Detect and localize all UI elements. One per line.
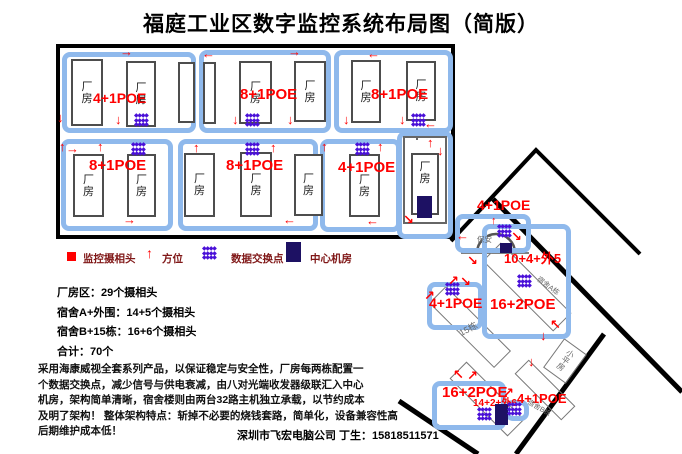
direction-arrow-icon: ↖ bbox=[453, 368, 464, 381]
direction-arrow-icon: ↓ bbox=[437, 144, 444, 157]
direction-arrow-icon: ← bbox=[424, 117, 437, 130]
direction-arrow-icon: ↓ bbox=[232, 113, 239, 126]
factory-building bbox=[178, 62, 195, 123]
direction-arrow-icon: ↓ bbox=[343, 113, 350, 126]
legend-camera-label: 监控摄相头 bbox=[83, 251, 136, 266]
factory-building-label: 厂房 bbox=[419, 161, 432, 185]
factory-building-label: 厂房 bbox=[81, 81, 94, 105]
factory-building: 厂房 bbox=[184, 153, 215, 217]
gate-count-label: 10+4+外5 bbox=[504, 252, 561, 265]
direction-arrow-icon: → bbox=[288, 45, 301, 58]
direction-arrow-icon: ↑ bbox=[97, 140, 104, 153]
data-switch-icon: ◆◆◆◆ ◆◆◆◆ ◆◆◆◆ bbox=[134, 114, 148, 128]
server-room-icon bbox=[417, 196, 432, 218]
direction-arrow-icon: ← bbox=[366, 214, 379, 227]
data-switch-icon: ◆◆◆◆ ◆◆◆◆ ◆◆◆◆ bbox=[411, 114, 425, 128]
direction-arrow-icon: ↗ bbox=[424, 289, 435, 302]
poe-label: 8+1POE bbox=[371, 87, 428, 102]
camera-count-stats: 厂房区：29个摄相头 宿舍A+外围：14+5个摄相头 宿舍B+15栋：16+6个… bbox=[57, 284, 196, 362]
data-switch-icon: ◆◆◆◆ ◆◆◆◆ ◆◆◆◆ bbox=[477, 408, 491, 422]
factory-building: 厂房 bbox=[294, 154, 323, 216]
factory-building-label: 厂房 bbox=[358, 174, 371, 198]
poe-label: 4+1POE bbox=[517, 392, 567, 405]
factory-building: 厂房 bbox=[294, 61, 326, 122]
poe-label: 4+1POE bbox=[93, 91, 146, 105]
legend-server-room-label: 中心机房 bbox=[310, 251, 352, 266]
data-switch-icon: ◆◆◆◆ ◆◆◆◆ ◆◆◆◆ bbox=[517, 275, 531, 289]
poe-label: 8+1POE bbox=[240, 87, 297, 102]
data-switch-icon: ◆◆◆◆ ◆◆◆◆ ◆◆◆◆ bbox=[355, 143, 369, 157]
factory-building bbox=[203, 62, 216, 124]
legend-direction-label: 方位 bbox=[162, 251, 183, 266]
direction-arrow-icon: ↘ bbox=[467, 254, 478, 267]
factory-building-label: 厂房 bbox=[302, 173, 315, 197]
data-switch-icon: ◆◆◆◆ ◆◆◆◆ ◆◆◆◆ bbox=[131, 143, 145, 157]
direction-arrow-icon: ↘ bbox=[403, 213, 414, 226]
direction-arrow-icon: ↑ bbox=[146, 246, 153, 260]
data-switch-icon: ◆◆◆◆ ◆◆◆◆ ◆◆◆◆ bbox=[202, 247, 216, 261]
data-switch-icon: ◆◆◆◆ ◆◆◆◆ ◆◆◆◆ bbox=[497, 225, 511, 239]
layout-diagram: 福庭工业区数字监控系统布局图（简版） 厂房 厂房 厂房 厂房 厂房 厂房 厂房 … bbox=[0, 0, 682, 454]
legend-switch-label: 数据交换点 bbox=[231, 251, 284, 266]
direction-arrow-icon: ↓ bbox=[57, 111, 64, 124]
direction-arrow-icon: ↑ bbox=[427, 136, 434, 149]
direction-arrow-icon: ↘ bbox=[511, 230, 522, 243]
poe-label: 4+1POE bbox=[338, 160, 395, 175]
poe-label: 4+1POE bbox=[429, 296, 482, 310]
direction-arrow-icon: ← bbox=[202, 47, 215, 60]
direction-arrow-icon: ↑ bbox=[270, 141, 277, 154]
direction-arrow-icon: → bbox=[66, 142, 79, 155]
poe-label: 8+1POE bbox=[226, 158, 283, 173]
factory-building-label: 厂房 bbox=[135, 174, 148, 198]
direction-arrow-icon: ↗ bbox=[467, 369, 478, 382]
direction-arrow-icon: ↑ bbox=[193, 141, 200, 154]
factory-building-label: 厂房 bbox=[250, 173, 263, 197]
direction-arrow-icon: ↑ bbox=[491, 216, 497, 227]
direction-arrow-icon: ← bbox=[456, 229, 469, 242]
direction-arrow-icon: ↓ bbox=[540, 329, 547, 342]
page-title: 福庭工业区数字监控系统布局图（简版） bbox=[0, 8, 682, 38]
direction-arrow-icon: ← bbox=[283, 213, 296, 226]
bungalow-label: 小平房 bbox=[554, 349, 575, 374]
direction-arrow-icon: → bbox=[120, 45, 133, 58]
poe-label: 4+1POE bbox=[477, 198, 530, 212]
direction-arrow-icon: ← bbox=[367, 47, 380, 60]
data-switch-icon: ◆◆◆◆ ◆◆◆◆ ◆◆◆◆ bbox=[245, 114, 259, 128]
direction-arrow-icon: ↘ bbox=[460, 275, 471, 288]
factory-building-label: 厂房 bbox=[82, 174, 95, 198]
company-contact: 深圳市飞宏电脑公司 丁生：15818511571 bbox=[237, 427, 439, 443]
direction-arrow-icon: ↓ bbox=[115, 113, 122, 126]
direction-arrow-icon: ↑ bbox=[321, 140, 328, 153]
data-switch-icon: ◆◆◆◆ ◆◆◆◆ ◆◆◆◆ bbox=[245, 143, 259, 157]
direction-arrow-icon: ↑ bbox=[377, 140, 384, 153]
direction-arrow-icon: ↖ bbox=[550, 318, 561, 331]
server-room-icon bbox=[286, 242, 301, 262]
factory-building-label: 厂房 bbox=[193, 173, 206, 197]
direction-arrow-icon: ↓ bbox=[287, 113, 294, 126]
camera-icon bbox=[67, 252, 76, 261]
direction-arrow-icon: → bbox=[123, 213, 136, 226]
poe-label: 8+1POE bbox=[89, 158, 146, 173]
direction-arrow-icon: ↗ bbox=[448, 274, 459, 287]
direction-arrow-icon: ↓ bbox=[528, 355, 535, 368]
direction-arrow-icon: ↗ bbox=[503, 386, 514, 399]
direction-arrow-icon: ↑ bbox=[59, 140, 66, 153]
guard-booth-label: 保安 bbox=[477, 236, 492, 244]
poe-label: 16+2POE bbox=[490, 297, 555, 312]
factory-building-label: 厂房 bbox=[304, 80, 317, 104]
direction-arrow-icon: ↓ bbox=[399, 113, 406, 126]
bungalow-building: 小平房 bbox=[543, 338, 587, 384]
